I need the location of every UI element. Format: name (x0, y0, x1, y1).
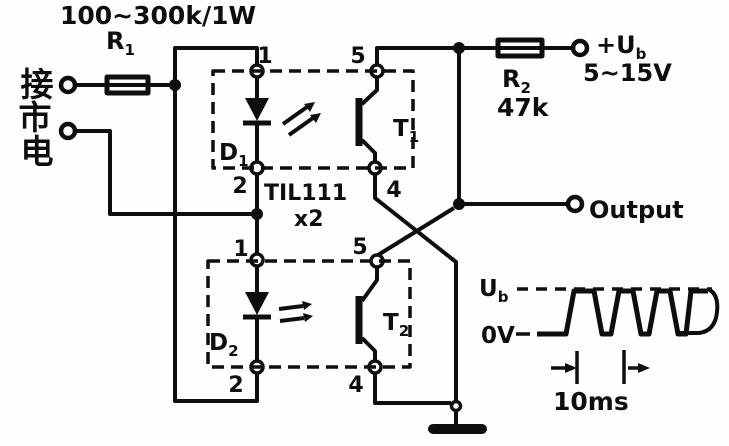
supply-range-label: 5~15V (583, 59, 672, 87)
d2-led-icon (243, 266, 271, 361)
output-label: Output (589, 196, 684, 224)
junction-dot (169, 79, 181, 91)
circuit-schematic: 100~300k/1W R1 接 市 电 1 5 2 4 1 5 2 4 TIL… (0, 0, 729, 446)
mains-terminal-bottom (61, 124, 75, 138)
ground-icon (433, 402, 482, 430)
junction-dot (251, 208, 263, 220)
opto1-pin5-label: 5 (350, 44, 365, 69)
t2-label: T2 (383, 310, 409, 340)
mains-input-label: 接 市 电 (19, 65, 54, 171)
waveform-high-label: Ub (479, 276, 509, 306)
opto1-pin1-label: 1 (257, 44, 272, 69)
ic-qty-label: x2 (294, 207, 324, 232)
wire-t2-collector-to-output (378, 208, 454, 255)
opto2-pin2-label: 2 (228, 373, 243, 398)
waveform-low-label: 0V (481, 323, 515, 349)
output-waveform (516, 289, 717, 384)
junction-dot (453, 42, 465, 54)
opto1-pin4-label: 4 (386, 178, 401, 203)
r2-value-label: 47k (497, 93, 550, 122)
light-arrows-2-icon (279, 301, 313, 322)
opto1-pin2-label: 2 (232, 174, 247, 199)
output-terminal (568, 197, 582, 211)
d1-label: D1 (219, 140, 249, 170)
r1-ref-label: R1 (106, 27, 135, 59)
period-markers (551, 350, 650, 384)
opto2-pin4-label: 4 (348, 373, 363, 398)
ic-part-label: TIL111 (264, 181, 347, 206)
wire-t2-emitter-to-ground (375, 373, 451, 403)
r1-value-label: 100~300k/1W (60, 1, 256, 30)
t1-phototransistor-icon (359, 77, 377, 162)
d1-led-icon (243, 77, 271, 162)
vplus-terminal (573, 41, 587, 55)
schematic-canvas: 100~300k/1W R1 接 市 电 1 5 2 4 1 5 2 4 TIL… (0, 0, 729, 446)
light-arrows-1-icon (283, 102, 321, 135)
t2-phototransistor-icon (359, 267, 377, 361)
d2-label: D2 (209, 330, 239, 360)
opto2-pin5-label: 5 (352, 235, 367, 260)
t1-label: T1 (393, 116, 419, 146)
opto2-pin1-label: 1 (233, 237, 248, 262)
waveform-period-label: 10ms (553, 387, 629, 416)
waveform-trace (537, 291, 708, 334)
svg-text:电: 电 (21, 132, 54, 171)
mains-terminal-top (61, 78, 75, 92)
wire-node-a-to-pin1 (175, 48, 257, 85)
junction-dot (453, 198, 465, 210)
